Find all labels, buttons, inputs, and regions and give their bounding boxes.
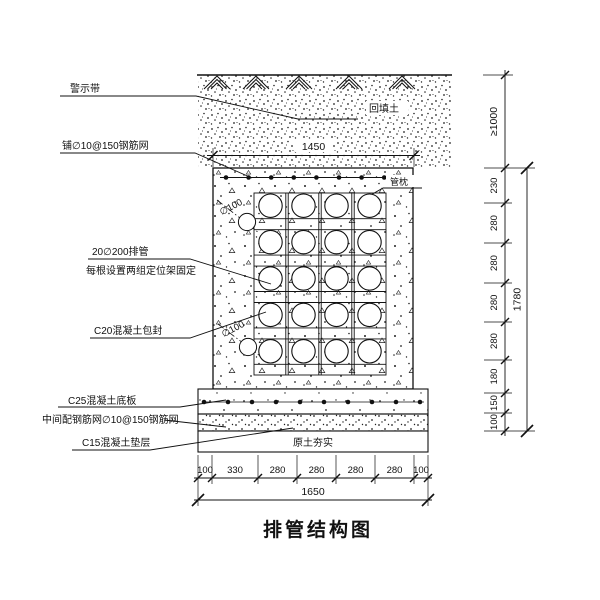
top-width-value: 1450 <box>302 141 326 153</box>
bottom-seg-2: 280 <box>270 465 286 476</box>
pipe-fix-label: 每根设置两组定位架固定 <box>86 264 196 277</box>
cushion-layer <box>198 414 428 431</box>
subsoil-label: 原土夯实 <box>293 436 333 449</box>
pipe-bank-drawing: 回填土 管枕 <box>0 0 600 600</box>
bottom-seg-4: 280 <box>348 465 364 476</box>
bottom-seg-1: 330 <box>227 465 243 476</box>
right-seg-6: 150 <box>489 395 500 411</box>
mid-mesh-label: 中间配钢筋网∅10@150钢筋网 <box>42 413 179 426</box>
base-plate <box>198 389 428 414</box>
right-seg-0: 230 <box>489 178 500 194</box>
drawing-canvas: 回填土 管枕 <box>0 0 600 600</box>
right-seg-2: 280 <box>489 255 500 271</box>
right-seg-5: 180 <box>489 369 500 385</box>
base-plate-label: C25混凝土底板 <box>68 394 136 407</box>
right-seg-7: 100 <box>489 414 500 430</box>
right-seg-4: 280 <box>489 333 500 349</box>
pipe-pillow-label: 管枕 <box>390 176 408 187</box>
bottom-total-value: 1650 <box>301 486 325 498</box>
dimension-bottom-chain: 100 330 280 280 280 280 100 1650 <box>192 455 434 506</box>
bottom-seg-3: 280 <box>309 465 325 476</box>
pipe-spec-label: 20∅200排管 <box>92 245 149 258</box>
right-total-value: 1780 <box>512 288 524 312</box>
bottom-seg-6: 100 <box>413 465 429 476</box>
backfill-label: 回填土 <box>369 102 399 115</box>
concrete-encasement-block: 管枕 ∅100 ∅100 <box>213 168 424 389</box>
top-mesh-label: 铺∅10@150钢筋网 <box>62 139 149 152</box>
cover-depth-value: ≥1000 <box>488 107 500 136</box>
drawing-title: 排管结构图 <box>263 518 373 541</box>
dimension-right-chain: ≥1000 230 280 280 280 280 180 150 100 17… <box>483 70 535 437</box>
bottom-extension-lines <box>198 455 428 506</box>
bottom-seg-0: 100 <box>197 465 213 476</box>
right-seg-3: 280 <box>489 295 500 311</box>
right-total-dimension: 1780 <box>512 162 534 437</box>
encase-label: C20混凝土包封 <box>94 324 162 337</box>
warning-tape-label: 警示带 <box>70 82 100 95</box>
bottom-seg-5: 280 <box>387 465 403 476</box>
right-seg-1: 280 <box>489 215 500 231</box>
subsoil-band: 原土夯实 <box>198 431 428 452</box>
cushion-label: C15混凝土垫层 <box>82 436 150 449</box>
